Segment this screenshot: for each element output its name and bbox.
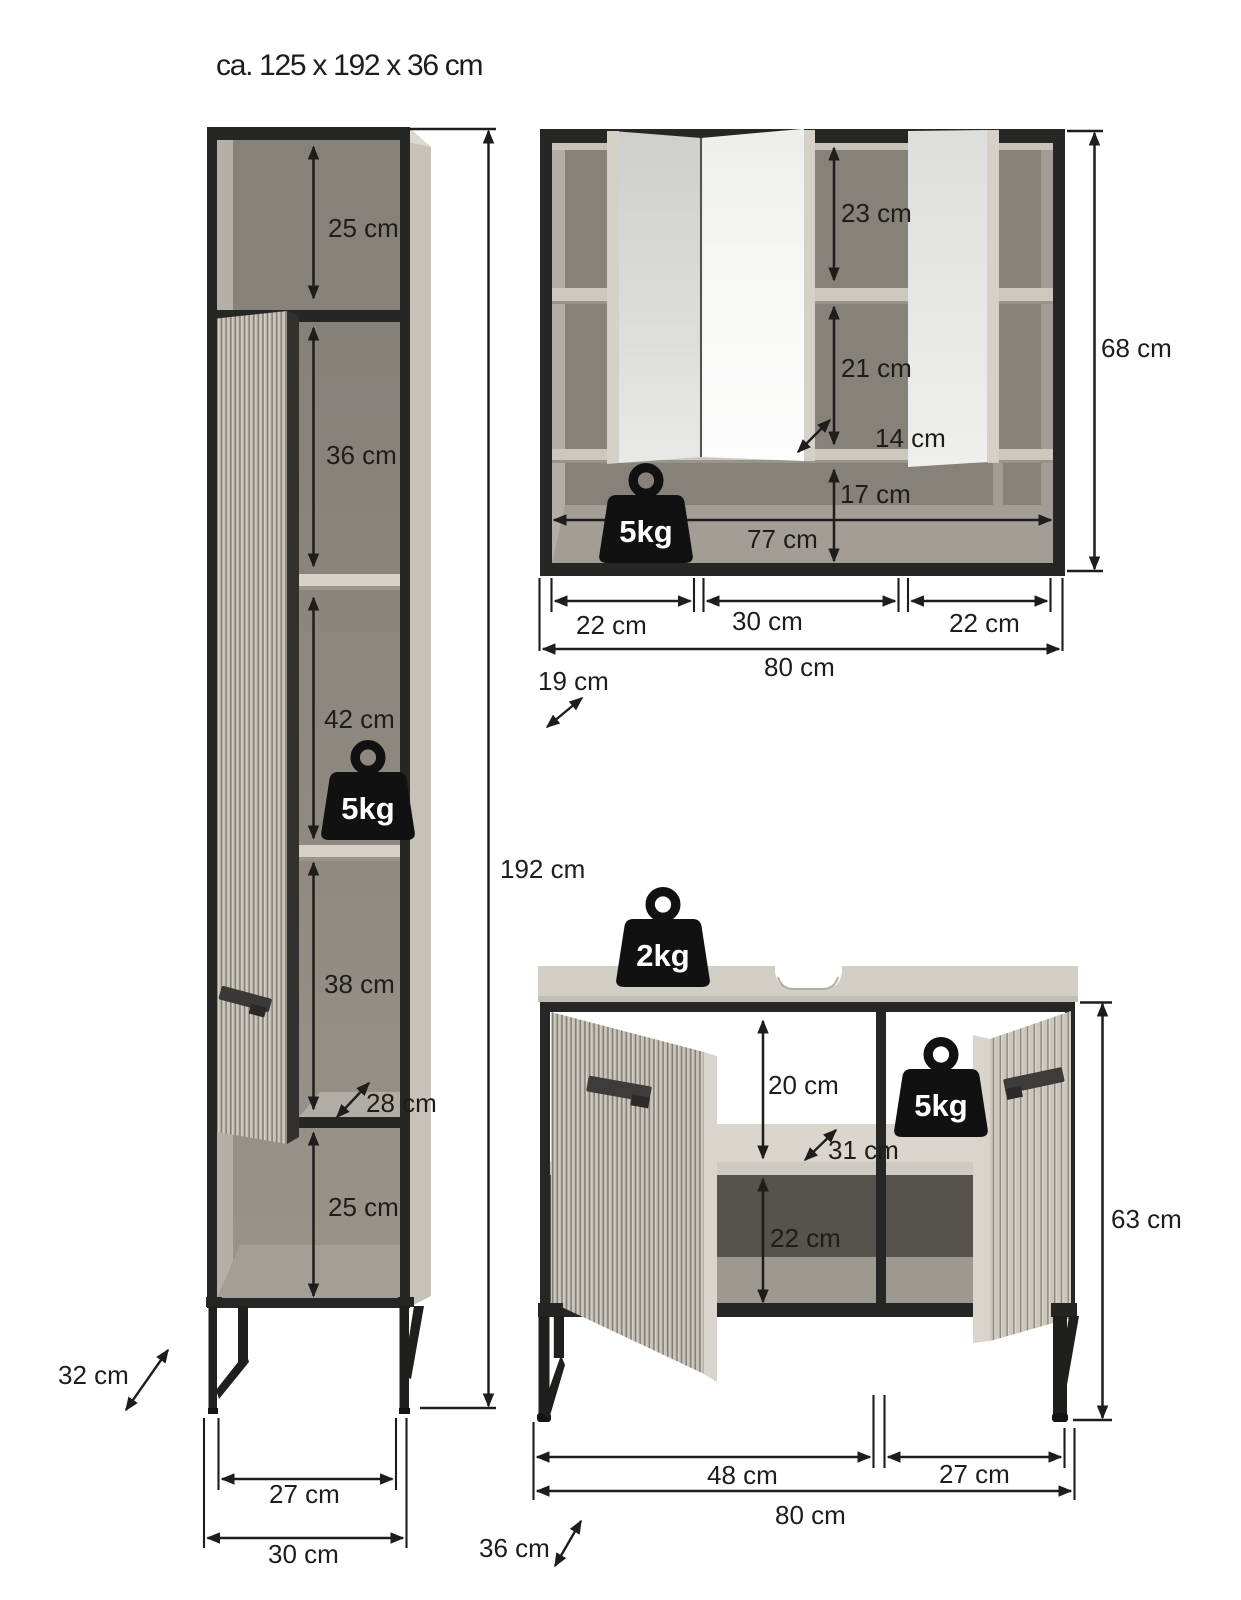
svg-text:22 cm: 22 cm [770,1223,841,1253]
svg-text:68 cm: 68 cm [1101,333,1172,363]
svg-text:80 cm: 80 cm [764,652,835,682]
svg-text:32 cm: 32 cm [58,1360,129,1390]
svg-text:23 cm: 23 cm [841,198,912,228]
svg-text:80 cm: 80 cm [775,1500,846,1530]
svg-text:30 cm: 30 cm [732,606,803,636]
svg-text:36 cm: 36 cm [326,440,397,470]
svg-text:22 cm: 22 cm [949,608,1020,638]
svg-text:25 cm: 25 cm [328,213,399,243]
svg-text:30 cm: 30 cm [268,1539,339,1569]
svg-text:19 cm: 19 cm [538,666,609,696]
svg-text:42 cm: 42 cm [324,704,395,734]
svg-text:63 cm: 63 cm [1111,1204,1182,1234]
svg-text:21 cm: 21 cm [841,353,912,383]
svg-text:31 cm: 31 cm [828,1135,899,1165]
svg-text:14 cm: 14 cm [875,423,946,453]
svg-text:20 cm: 20 cm [768,1070,839,1100]
svg-text:36 cm: 36 cm [479,1533,550,1563]
svg-text:5kg: 5kg [341,791,394,826]
svg-text:ca. 125 x 192 x 36 cm: ca. 125 x 192 x 36 cm [216,49,483,82]
svg-text:22 cm: 22 cm [576,610,647,640]
svg-text:5kg: 5kg [914,1088,967,1123]
svg-text:28 cm: 28 cm [366,1088,437,1118]
svg-text:38 cm: 38 cm [324,969,395,999]
svg-text:27 cm: 27 cm [269,1479,340,1509]
svg-text:25 cm: 25 cm [328,1192,399,1222]
svg-text:77 cm: 77 cm [747,524,818,554]
svg-text:27 cm: 27 cm [939,1459,1010,1489]
svg-text:48 cm: 48 cm [707,1460,778,1490]
svg-text:17 cm: 17 cm [840,479,911,509]
svg-text:5kg: 5kg [619,514,672,549]
svg-text:2kg: 2kg [636,938,689,973]
svg-text:192 cm: 192 cm [500,854,585,884]
